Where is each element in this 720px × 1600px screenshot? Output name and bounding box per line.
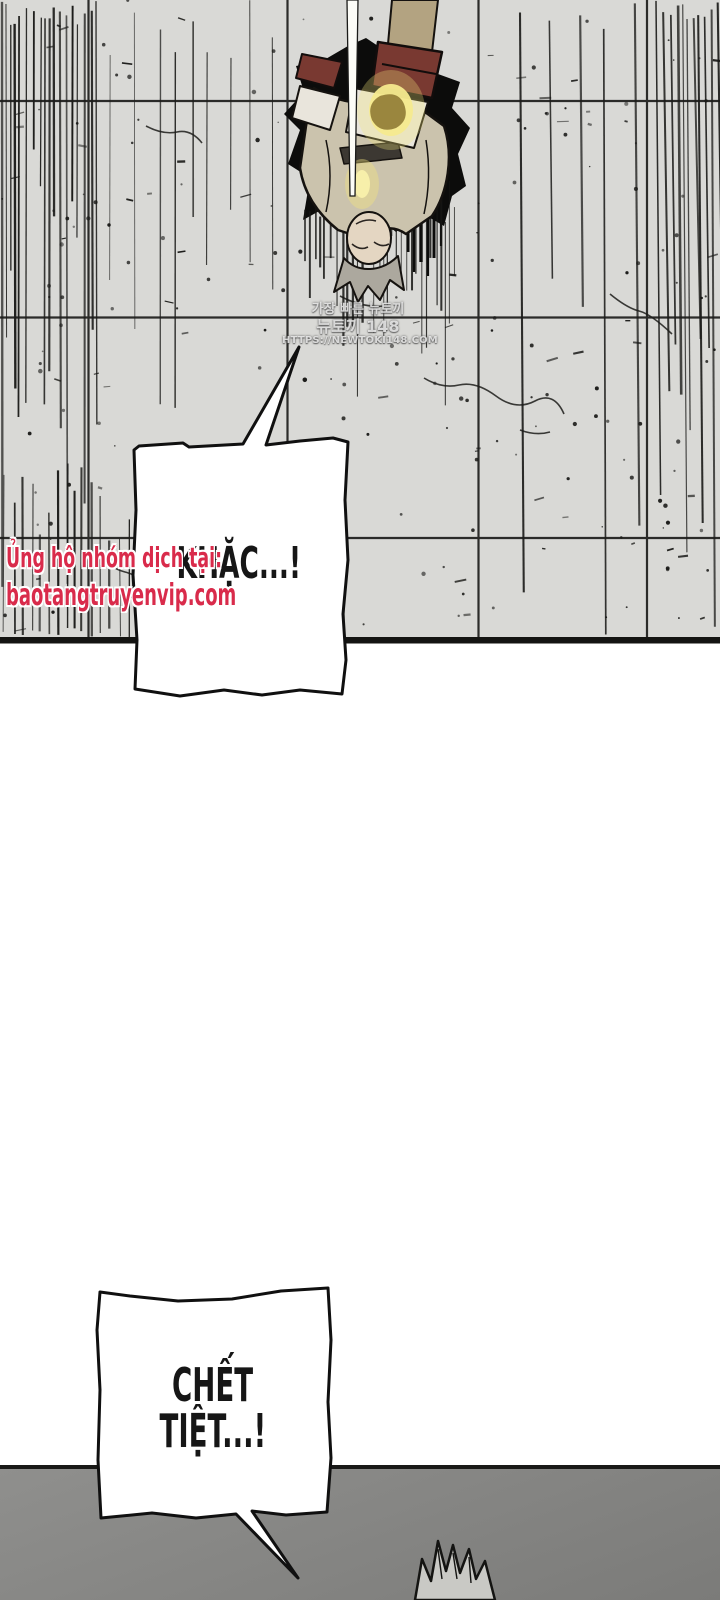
speech-bubble-chet <box>97 1288 331 1578</box>
speech-bubble-khac <box>133 347 348 696</box>
comic-page: 가장 빠른 뉴토끼 뉴토끼 148 HTTPS://NEWTOKI148.COM… <box>0 0 720 1600</box>
speech-bubbles <box>0 0 720 1600</box>
